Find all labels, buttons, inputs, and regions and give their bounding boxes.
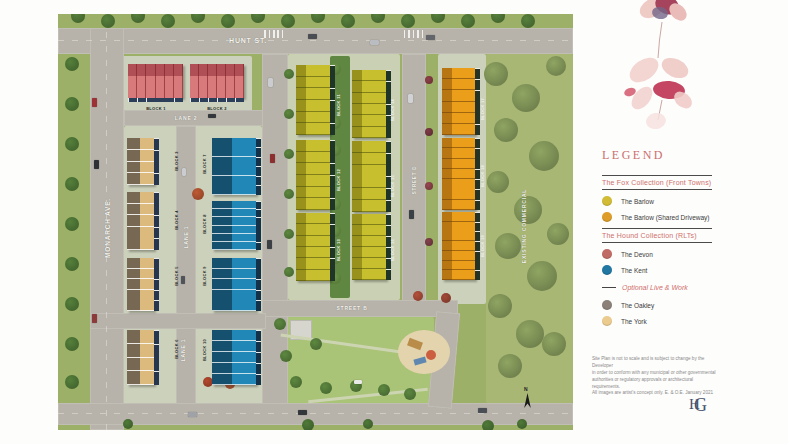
tree	[311, 14, 325, 23]
block-label: BLOCK 9	[202, 266, 207, 286]
street-label: MONARCH AVE.	[104, 198, 111, 258]
car	[298, 410, 307, 415]
unit-number-strip	[330, 65, 335, 135]
compass-north-label: N	[524, 386, 528, 392]
tree	[529, 141, 559, 171]
tree	[514, 196, 542, 224]
tree	[371, 14, 385, 23]
legend-item: The Barlow (Shared Driveway)	[602, 212, 712, 222]
road-hunt-st	[58, 28, 573, 54]
block-label: BLOCK 10	[202, 339, 207, 361]
tree	[65, 177, 79, 191]
legend-optional-label: Optional Live & Work	[622, 284, 688, 291]
tree	[413, 291, 423, 301]
unit-number-strip	[154, 330, 159, 385]
tree	[441, 293, 451, 303]
tree	[284, 267, 294, 277]
tree	[302, 419, 314, 430]
tree	[284, 189, 294, 199]
tree	[65, 57, 79, 71]
tree	[488, 294, 512, 318]
tree	[431, 14, 445, 23]
play-equipment	[426, 350, 436, 360]
tree	[192, 188, 204, 200]
building-block	[442, 212, 475, 280]
unit-number-strip	[154, 258, 159, 311]
legend-item-label: The Kent	[621, 267, 647, 274]
street-label: EXISTING COMMERCIAL	[521, 189, 527, 263]
building-block	[127, 330, 154, 385]
brand-logo: HG	[678, 393, 718, 414]
tree	[65, 297, 79, 311]
tree	[512, 84, 540, 112]
legend-item-label: The Barlow	[621, 198, 654, 205]
tree	[491, 14, 505, 23]
street-label: LANE 1	[183, 226, 189, 249]
legend-item-label: The Barlow (Shared Driveway)	[621, 214, 710, 221]
block-label: BLOCK 6	[174, 339, 179, 359]
building-block	[352, 214, 386, 280]
tree	[527, 261, 557, 291]
block-label: BLOCK 7	[202, 154, 207, 174]
tree	[101, 14, 115, 28]
building-block	[212, 330, 256, 385]
tree	[65, 217, 79, 231]
road-centerline	[58, 40, 573, 41]
tree	[65, 257, 79, 271]
building-block	[127, 258, 154, 311]
unit-number-strip	[256, 201, 261, 250]
legend-section: The Fox Collection (Front Towns)The Barl…	[602, 175, 712, 222]
block-label: BLOCK 4	[174, 210, 179, 230]
street-label: STREET B	[336, 305, 367, 311]
tree	[284, 229, 294, 239]
tree	[484, 62, 508, 86]
legend-swatch	[602, 212, 612, 222]
block-label: BLOCK 3	[174, 151, 179, 171]
unit-number-strip	[256, 258, 261, 311]
block-label: BLOCK 13	[336, 239, 341, 261]
building-block	[296, 213, 330, 281]
tree	[546, 56, 566, 76]
legend-item: The Oakley	[602, 300, 712, 310]
legend-item: The York	[602, 316, 712, 326]
disclaimer-line: in order to conform with any municipal o…	[592, 370, 720, 377]
tree	[425, 182, 433, 190]
tree	[401, 14, 415, 28]
car	[354, 380, 362, 384]
tree	[495, 233, 521, 259]
block-label: BLOCK 5	[174, 266, 179, 286]
tree	[251, 14, 265, 23]
tree	[65, 97, 79, 111]
tree	[191, 14, 205, 23]
legend-item-label: The Oakley	[621, 302, 654, 309]
decorative-leaves	[622, 0, 717, 132]
dash-line	[602, 287, 616, 288]
car	[188, 412, 197, 417]
tree	[274, 318, 286, 330]
legend-section: Optional Live & WorkThe OakleyThe York	[602, 284, 712, 326]
legend-item-label: The York	[621, 318, 647, 325]
legend-swatch	[602, 265, 612, 275]
legend-optional-heading: Optional Live & Work	[602, 284, 712, 291]
tree	[161, 14, 175, 28]
tree	[425, 238, 433, 246]
tree	[290, 376, 302, 388]
tree	[516, 320, 544, 348]
street-label: HUNT ST.	[229, 37, 267, 44]
car	[270, 154, 275, 163]
car	[92, 314, 97, 323]
tree	[378, 384, 390, 396]
tree	[487, 171, 509, 193]
site-plan: BLOCK 1BLOCK 2BLOCK 3BLOCK 4BLOCK 5BLOCK…	[58, 14, 573, 430]
tree	[65, 137, 79, 151]
building-block	[190, 64, 244, 98]
block-label: BLOCK 15	[390, 175, 395, 197]
tree	[65, 337, 79, 351]
car	[426, 35, 435, 40]
legend-swatch	[602, 316, 612, 326]
block-label: BLOCK 12	[336, 169, 341, 191]
tree	[425, 128, 433, 136]
tree	[494, 118, 518, 142]
car	[268, 78, 273, 87]
building-block	[212, 138, 256, 195]
legend-swatch	[602, 300, 612, 310]
block-label: BLOCK 19	[480, 235, 485, 257]
legend-item: The Kent	[602, 265, 712, 275]
tree	[547, 223, 569, 245]
tree	[281, 14, 295, 28]
building-block	[352, 141, 386, 212]
tree	[310, 338, 322, 350]
block-label: BLOCK 16	[390, 239, 395, 261]
road-centerline	[58, 413, 573, 414]
car	[181, 276, 185, 284]
block-label: BLOCK 18	[480, 165, 485, 187]
tree	[71, 14, 85, 23]
building-block	[212, 201, 256, 250]
unit-number-strip	[190, 98, 244, 102]
legend-section-heading: The Fox Collection (Front Towns)	[602, 175, 712, 190]
tree	[65, 375, 79, 389]
disclaimer-text: Site Plan is not to scale and is subject…	[592, 356, 720, 397]
legend-section-heading: The Hound Collection (RLTs)	[602, 228, 712, 243]
disclaimer-line: authorities or regulatory approvals or a…	[592, 377, 720, 391]
tree	[498, 354, 522, 378]
unit-number-strip	[330, 140, 335, 210]
building-block	[442, 68, 475, 135]
tree	[425, 76, 433, 84]
car	[267, 240, 272, 249]
tree	[131, 14, 145, 23]
tree	[221, 14, 235, 28]
car	[182, 168, 186, 176]
car	[370, 40, 379, 45]
building-block	[127, 192, 154, 250]
tree	[284, 149, 294, 159]
building-block	[296, 140, 330, 210]
legend-sections: The Fox Collection (Front Towns)The Barl…	[602, 175, 712, 326]
site-plan-page: BLOCK 1BLOCK 2BLOCK 3BLOCK 4BLOCK 5BLOCK…	[0, 0, 788, 444]
building-block	[352, 70, 386, 138]
logo-letter-g: G	[694, 395, 707, 415]
tree	[280, 350, 292, 362]
tree	[482, 420, 494, 430]
car	[408, 94, 413, 103]
tree	[404, 388, 416, 400]
legend-section: The Hound Collection (RLTs)The DevonThe …	[602, 228, 712, 275]
unit-number-strip	[154, 138, 159, 185]
tree	[363, 419, 373, 429]
street-label: STREET D	[412, 166, 417, 195]
crosswalk	[404, 30, 426, 38]
tree	[284, 69, 294, 79]
building-block	[296, 65, 330, 135]
building-block	[212, 258, 256, 311]
disclaimer-line: Site Plan is not to scale and is subject…	[592, 356, 720, 370]
unit-number-strip	[256, 138, 261, 195]
tree	[123, 419, 133, 429]
tree	[521, 14, 535, 28]
road-south	[58, 403, 573, 425]
block-label: BLOCK 11	[336, 94, 341, 116]
legend-swatch	[602, 249, 612, 259]
tree	[284, 109, 294, 119]
playground-area	[398, 330, 450, 374]
building-block	[128, 64, 183, 98]
block-label: BLOCK 2	[207, 106, 227, 111]
unit-number-strip	[154, 192, 159, 250]
block-label: BLOCK 14	[390, 99, 395, 121]
tree	[461, 14, 475, 28]
street-label: LANE 1	[180, 339, 186, 362]
block-label: BLOCK 1	[146, 106, 166, 111]
legend-item: The Barlow	[602, 196, 712, 206]
tree	[341, 14, 355, 28]
tree	[517, 419, 527, 429]
legend-swatch	[602, 196, 612, 206]
block-label: BLOCK 17	[480, 98, 485, 120]
unit-number-strip	[128, 98, 183, 102]
road-lane-1	[176, 126, 196, 407]
tree	[320, 382, 332, 394]
car	[478, 408, 487, 413]
unit-number-strip	[256, 330, 261, 385]
road-street-b-west	[90, 313, 266, 329]
legend-panel: LEGEND The Fox Collection (Front Towns)T…	[602, 148, 712, 332]
block-label: BLOCK 8	[202, 214, 207, 234]
car	[94, 160, 99, 169]
legend-title: LEGEND	[602, 148, 712, 163]
tree	[542, 332, 566, 356]
legend-item: The Devon	[602, 249, 712, 259]
building-block	[127, 138, 154, 185]
car	[92, 98, 97, 107]
crosswalk	[264, 30, 286, 38]
car	[208, 114, 216, 118]
legend-item-label: The Devon	[621, 251, 653, 258]
building-block	[442, 138, 475, 210]
street-label: LANE 2	[175, 115, 198, 121]
car	[308, 34, 317, 39]
unit-number-strip	[330, 213, 335, 281]
car	[409, 210, 414, 219]
